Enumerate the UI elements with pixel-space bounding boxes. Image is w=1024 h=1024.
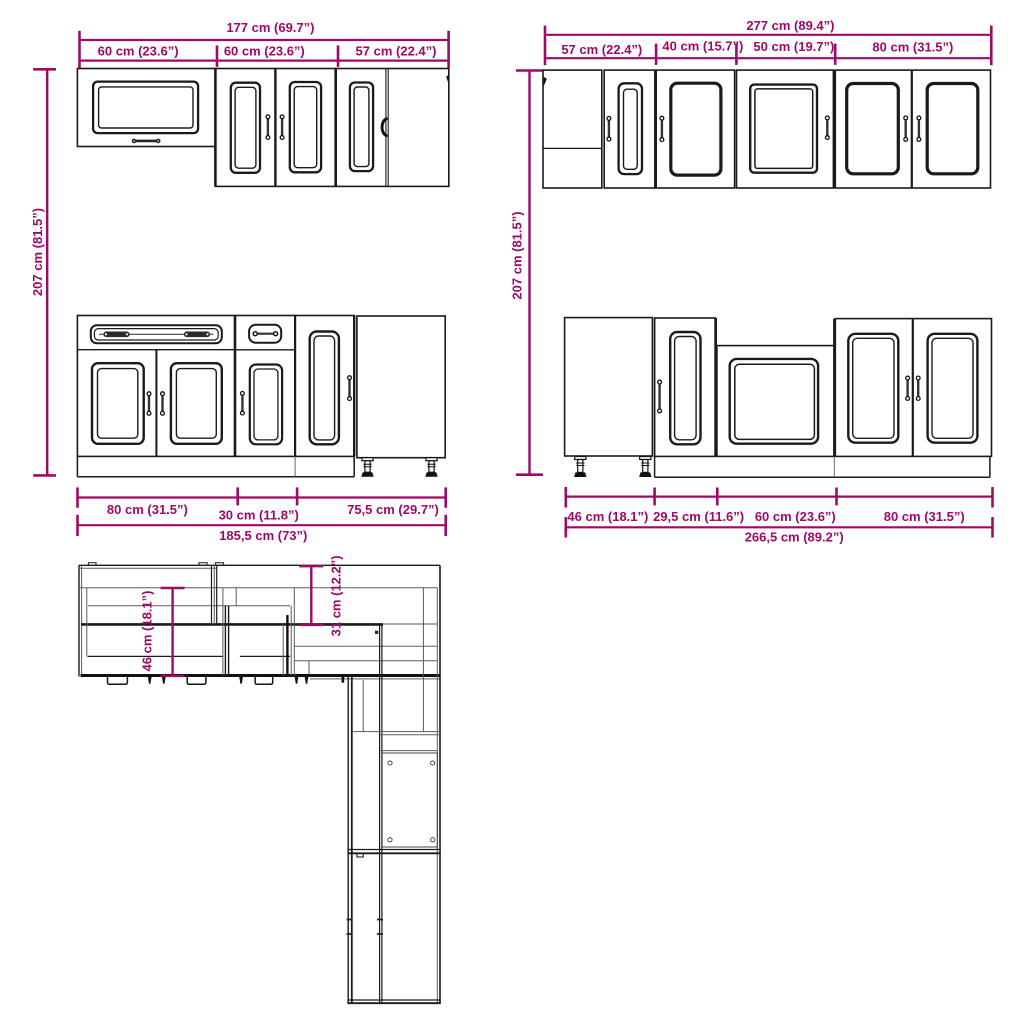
svg-text:40 cm (15.7”): 40 cm (15.7”) <box>662 39 743 54</box>
svg-text:46 cm (18.1”): 46 cm (18.1”) <box>567 509 648 524</box>
svg-text:277 cm (89.4”): 277 cm (89.4”) <box>746 18 834 33</box>
svg-text:57 cm (22.4”): 57 cm (22.4”) <box>356 44 437 59</box>
svg-text:29,5 cm (11.6”): 29,5 cm (11.6”) <box>653 509 744 524</box>
svg-text:30 cm (11.8”): 30 cm (11.8”) <box>219 508 299 523</box>
svg-text:46 cm (18.1”): 46 cm (18.1”) <box>139 591 154 672</box>
svg-text:207 cm (81.5”): 207 cm (81.5”) <box>510 211 525 299</box>
svg-text:80 cm (31.5”): 80 cm (31.5”) <box>107 502 188 517</box>
svg-text:266,5 cm (89.2”): 266,5 cm (89.2”) <box>745 530 844 545</box>
svg-text:177 cm (69.7”): 177 cm (69.7”) <box>226 20 314 35</box>
svg-text:80 cm (31.5”): 80 cm (31.5”) <box>872 39 953 54</box>
svg-text:207 cm (81.5”): 207 cm (81.5”) <box>30 208 45 296</box>
svg-text:50 cm (19.7”): 50 cm (19.7”) <box>753 39 834 54</box>
svg-text:60 cm (23.6”): 60 cm (23.6”) <box>755 509 836 524</box>
svg-text:60 cm (23.6”): 60 cm (23.6”) <box>224 44 305 59</box>
svg-text:75,5 cm (29.7”): 75,5 cm (29.7”) <box>347 502 439 517</box>
svg-text:80 cm (31.5”): 80 cm (31.5”) <box>884 509 965 524</box>
svg-text:185,5 cm (73”): 185,5 cm (73”) <box>219 528 307 543</box>
svg-text:60 cm (23.6”): 60 cm (23.6”) <box>98 44 179 59</box>
svg-text:31 cm (12.2”): 31 cm (12.2”) <box>328 555 343 636</box>
svg-text:57 cm (22.4”): 57 cm (22.4”) <box>561 42 642 57</box>
